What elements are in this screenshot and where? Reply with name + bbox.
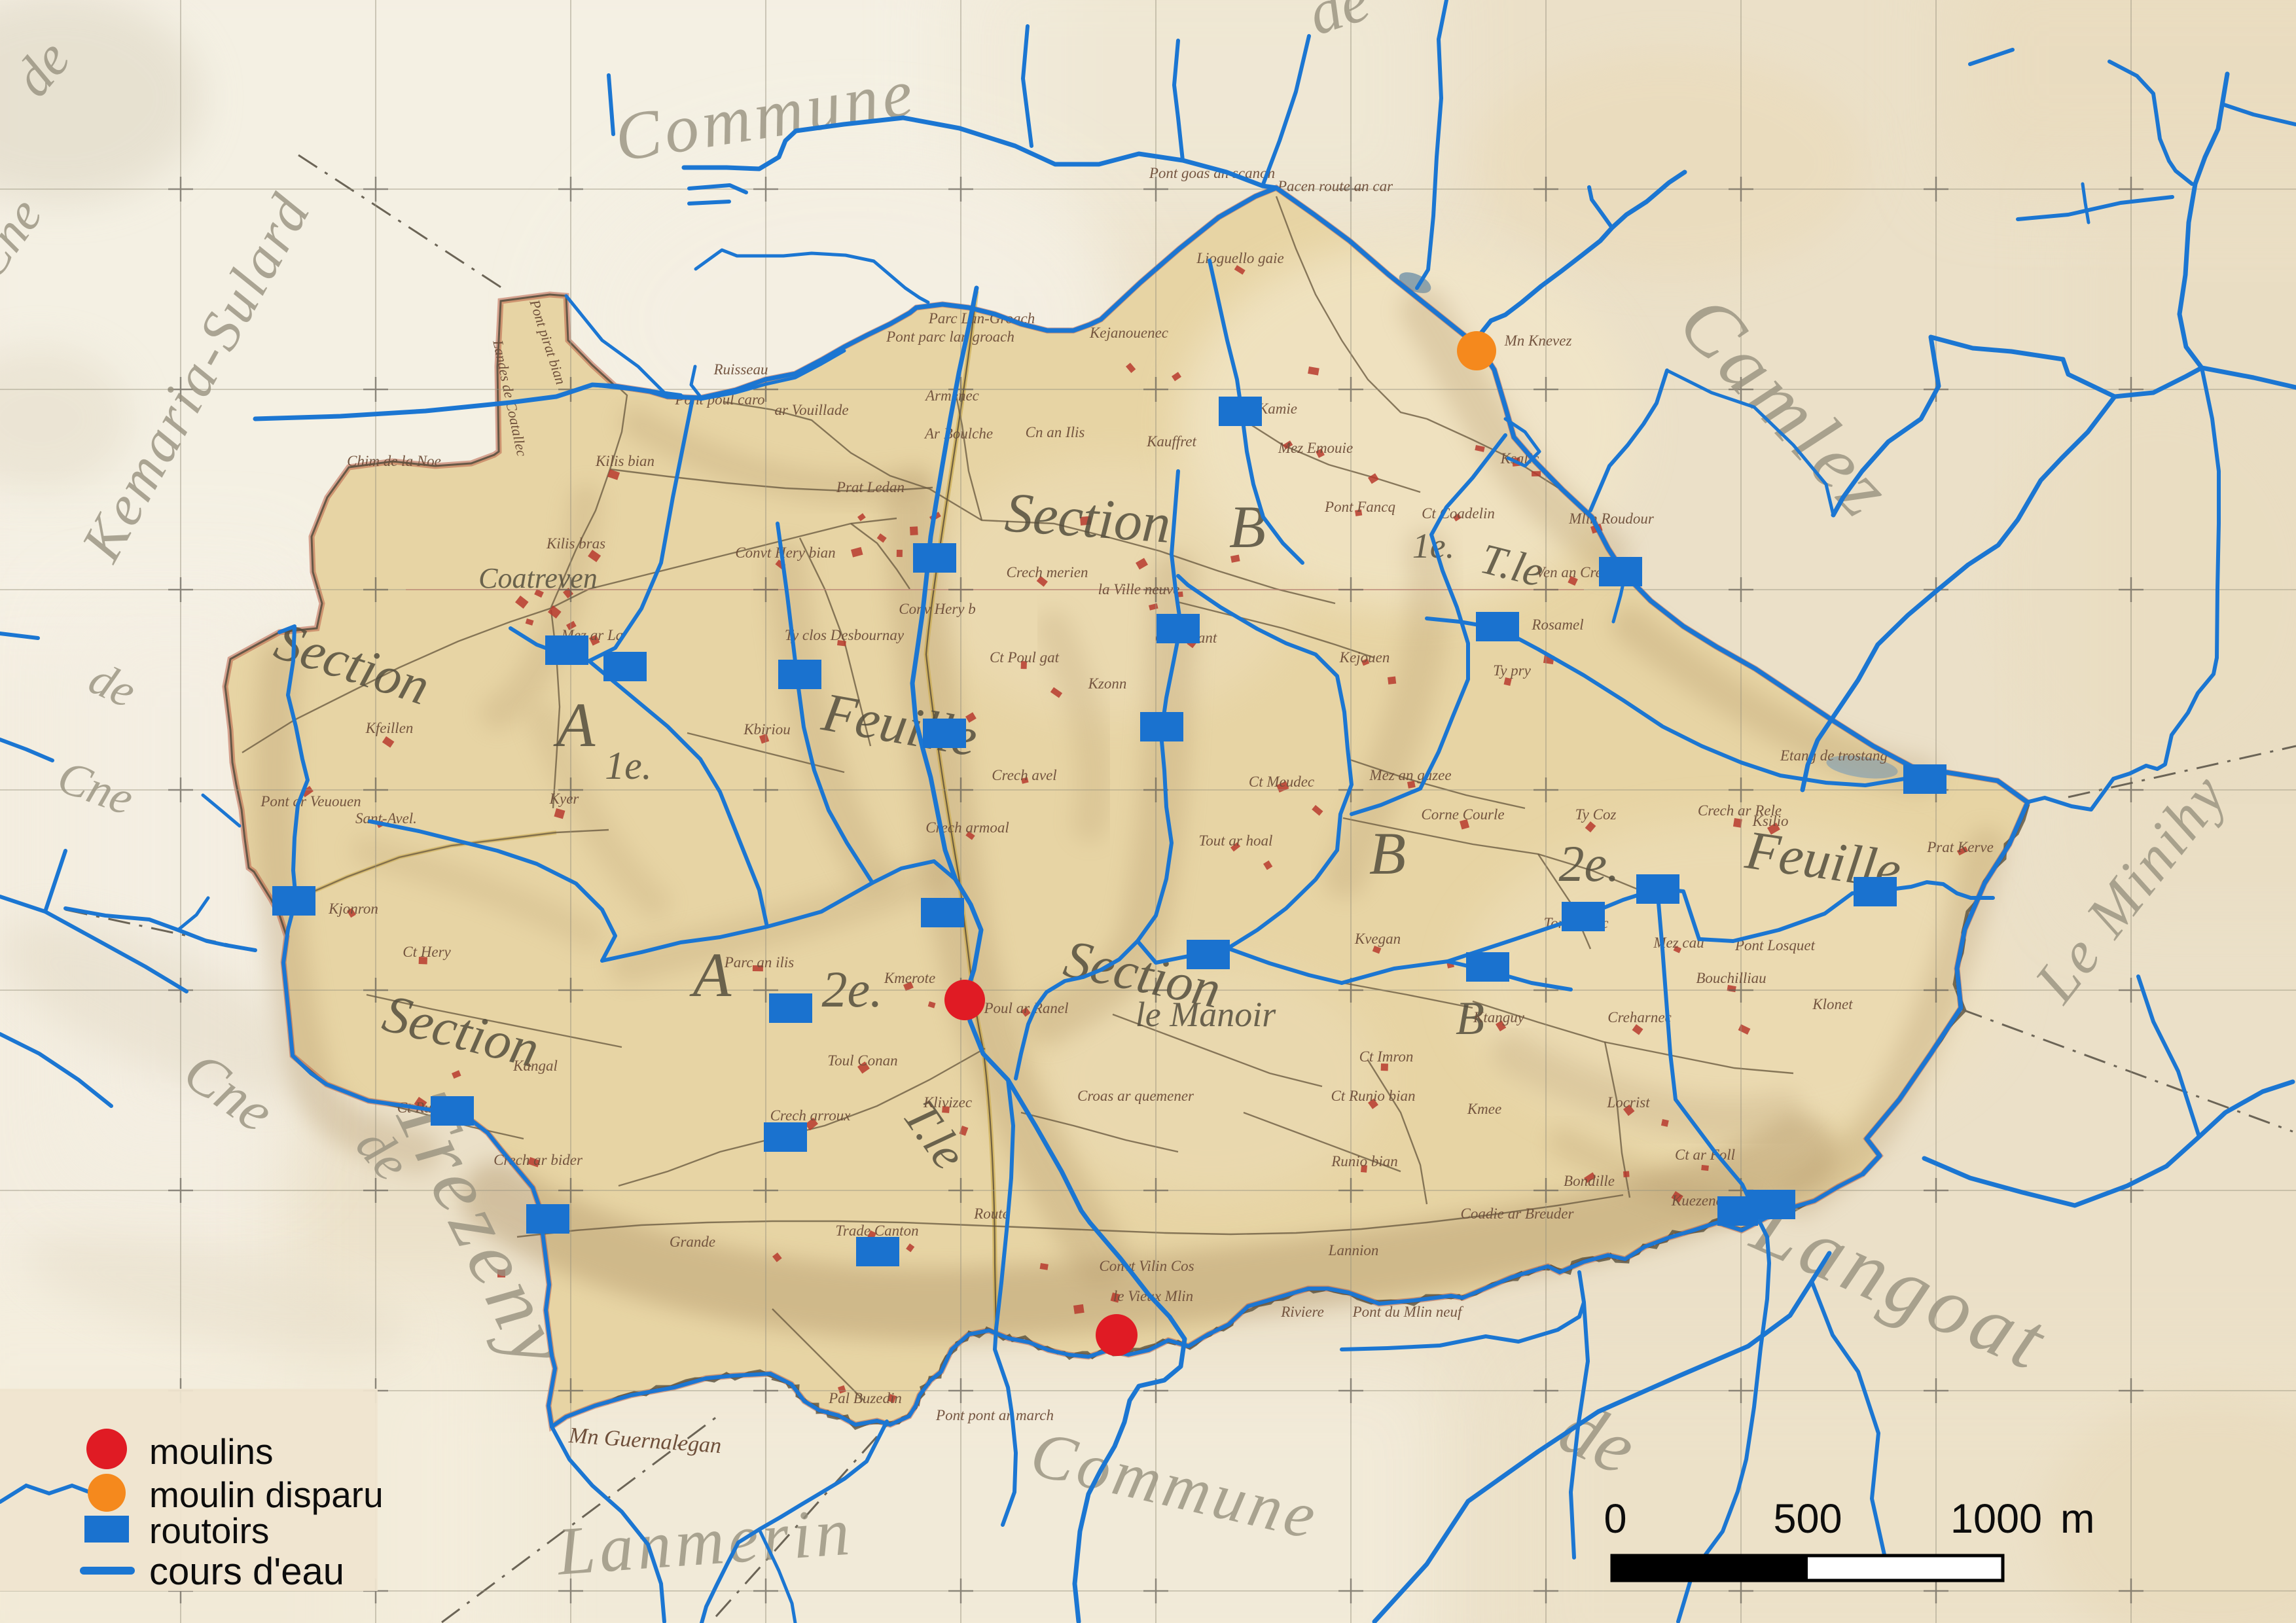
svg-text:moulins: moulins: [149, 1431, 274, 1472]
svg-text:Mn Knevez: Mn Knevez: [1504, 332, 1572, 349]
svg-text:Ruisseau: Ruisseau: [713, 361, 768, 378]
svg-text:Klivizec: Klivizec: [923, 1094, 972, 1111]
svg-text:Pont pont ar march: Pont pont ar march: [935, 1407, 1054, 1423]
svg-text:Route: Route: [973, 1205, 1009, 1222]
svg-text:1e.: 1e.: [605, 744, 652, 787]
svg-text:Pont ar Veuouen: Pont ar Veuouen: [260, 793, 361, 810]
svg-text:Lannion: Lannion: [1328, 1242, 1379, 1258]
svg-text:Etang de trostang: Etang de trostang: [1780, 747, 1888, 764]
svg-text:Corne Courle: Corne Courle: [1421, 806, 1504, 823]
svg-text:Conv Hery b: Conv Hery b: [899, 601, 976, 617]
svg-text:Kejouen: Kejouen: [1339, 649, 1390, 666]
svg-text:Kmerote: Kmerote: [884, 970, 935, 986]
svg-text:0: 0: [1604, 1496, 1626, 1542]
svg-text:Convt Vilin Cos: Convt Vilin Cos: [1099, 1258, 1194, 1274]
svg-text:Crech ar Rele: Crech ar Rele: [1698, 802, 1782, 819]
svg-text:Ty pry: Ty pry: [1493, 662, 1531, 679]
svg-text:cours d'eau: cours d'eau: [149, 1550, 344, 1593]
svg-text:Pont parc lan groach: Pont parc lan groach: [886, 329, 1014, 345]
svg-text:ar Vouillade: ar Vouillade: [774, 402, 848, 418]
svg-text:Kangal: Kangal: [512, 1058, 558, 1074]
svg-text:Ct Runio bian: Ct Runio bian: [1331, 1088, 1415, 1104]
svg-text:A: A: [689, 940, 732, 1010]
svg-text:Mlin Roudour: Mlin Roudour: [1568, 510, 1655, 527]
svg-text:Mez Emouie: Mez Emouie: [1278, 440, 1353, 456]
svg-text:Crech arroux: Crech arroux: [770, 1107, 852, 1124]
svg-text:Pal Buzedin: Pal Buzedin: [828, 1390, 902, 1406]
svg-text:Poul ar Ranel: Poul ar Ranel: [983, 1000, 1068, 1016]
svg-text:Bouchilliau: Bouchilliau: [1696, 970, 1766, 986]
svg-text:Kbiriou: Kbiriou: [743, 721, 791, 738]
svg-text:B: B: [1369, 820, 1406, 887]
svg-text:moulin disparu: moulin disparu: [149, 1474, 384, 1515]
svg-text:Prat Kerve: Prat Kerve: [1926, 839, 1994, 855]
svg-text:Croas ar quemener: Croas ar quemener: [1077, 1088, 1194, 1104]
svg-text:Grande: Grande: [670, 1234, 715, 1250]
svg-text:Ct Meudec: Ct Meudec: [1249, 774, 1314, 790]
svg-text:2e.: 2e.: [1558, 835, 1619, 892]
svg-text:Ktanguy: Ktanguy: [1473, 1009, 1525, 1026]
svg-text:Locrist: Locrist: [1606, 1094, 1650, 1111]
svg-text:Klonet: Klonet: [1812, 996, 1853, 1012]
svg-text:Pont Fancq: Pont Fancq: [1324, 499, 1395, 515]
svg-text:Pont du Mlin neuf: Pont du Mlin neuf: [1352, 1304, 1464, 1320]
svg-text:Ct ar Foll: Ct ar Foll: [1675, 1147, 1735, 1163]
svg-text:Ct Imron: Ct Imron: [1359, 1048, 1414, 1065]
svg-text:Pacen route an car: Pacen route an car: [1277, 178, 1393, 194]
svg-text:Ty clos Desbournay: Ty clos Desbournay: [785, 627, 905, 643]
svg-text:Creharnec: Creharnec: [1607, 1009, 1672, 1026]
svg-text:Riviere: Riviere: [1280, 1304, 1324, 1320]
svg-text:Kvegan: Kvegan: [1354, 931, 1401, 947]
svg-text:Prat Ledan: Prat Ledan: [836, 479, 905, 495]
svg-text:Parc an ilis: Parc an ilis: [724, 954, 795, 971]
svg-text:Rosamel: Rosamel: [1531, 616, 1583, 633]
svg-text:Kejanouenec: Kejanouenec: [1089, 325, 1168, 341]
svg-text:Kauffret: Kauffret: [1146, 433, 1196, 450]
svg-text:Kyer: Kyer: [549, 791, 580, 807]
svg-text:Kjonron: Kjonron: [328, 901, 378, 917]
svg-text:500: 500: [1773, 1496, 1842, 1542]
svg-text:Kilis bian: Kilis bian: [595, 453, 655, 469]
svg-text:Bondille: Bondille: [1564, 1173, 1615, 1189]
svg-text:Mez an gazee: Mez an gazee: [1369, 767, 1451, 783]
svg-text:Trade Canton: Trade Canton: [835, 1222, 918, 1239]
svg-text:la Ville neuve: la Ville neuve: [1098, 581, 1180, 597]
svg-text:Crech avel: Crech avel: [992, 767, 1056, 783]
svg-text:2e.: 2e.: [821, 961, 882, 1018]
svg-text:Crech merien: Crech merien: [1007, 564, 1088, 580]
svg-text:Toul Conan: Toul Conan: [827, 1052, 897, 1069]
svg-text:A: A: [553, 690, 596, 760]
svg-text:Coatreven: Coatreven: [478, 562, 598, 594]
svg-text:Cn an Ilis: Cn an Ilis: [1026, 424, 1085, 440]
svg-text:Coadie ar Breuder: Coadie ar Breuder: [1461, 1205, 1575, 1222]
svg-text:Kamie: Kamie: [1257, 401, 1297, 417]
svg-text:Ct Coadelin: Ct Coadelin: [1422, 505, 1495, 522]
svg-text:Ct Hery: Ct Hery: [403, 944, 451, 960]
svg-text:Section: Section: [1003, 480, 1172, 554]
svg-text:Kilis bras: Kilis bras: [546, 535, 605, 552]
svg-text:Kfeillen: Kfeillen: [365, 720, 414, 736]
svg-text:m: m: [2060, 1496, 2094, 1542]
svg-text:le Manoir: le Manoir: [1136, 995, 1276, 1034]
svg-text:Ct Poul gat: Ct Poul gat: [990, 649, 1060, 666]
svg-text:Convt Hery bian: Convt Hery bian: [735, 544, 835, 561]
svg-text:Chim de la Noe: Chim de la Noe: [347, 453, 441, 469]
svg-text:Runio bian: Runio bian: [1331, 1153, 1398, 1169]
svg-text:Tout ar hoal: Tout ar hoal: [1199, 832, 1273, 849]
svg-text:Ty Coz: Ty Coz: [1575, 806, 1617, 823]
svg-text:routoirs: routoirs: [149, 1510, 269, 1551]
svg-text:1000: 1000: [1950, 1496, 2042, 1542]
svg-text:Ar Boulche: Ar Boulche: [924, 425, 993, 442]
svg-text:Kzonn: Kzonn: [1088, 675, 1127, 692]
svg-text:Kmee: Kmee: [1467, 1101, 1501, 1117]
